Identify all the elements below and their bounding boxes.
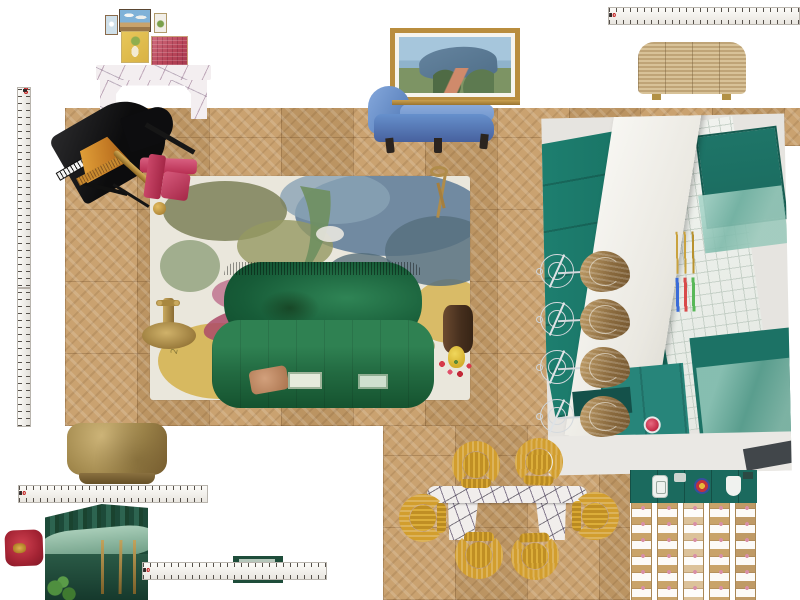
chair-front: [461, 479, 491, 488]
stool-bolt: [536, 316, 543, 323]
banquette-brass-leg: [133, 540, 136, 594]
rattan-sideboard[interactable]: [638, 42, 746, 100]
plan-room-column: [631, 503, 652, 600]
counter-stool-3[interactable]: [538, 345, 633, 391]
gallery-frame-sky[interactable]: [119, 9, 151, 32]
kitchen-gold-utensils: [672, 231, 699, 274]
brass-ottoman[interactable]: [67, 423, 167, 484]
kitchen-floor-plan[interactable]: [630, 470, 757, 503]
kitchen-knife-handles: [673, 277, 698, 311]
stool-seat: [580, 396, 630, 437]
gallery-frame-blue-floral[interactable]: [105, 15, 118, 35]
blue-chaise[interactable]: [368, 86, 502, 156]
side-table-top: [142, 322, 196, 349]
sideboard-body: [638, 42, 746, 94]
gallery-frame-red[interactable]: [151, 36, 188, 66]
plan-appliance: [726, 476, 741, 496]
brass-side-table[interactable]: [142, 298, 196, 350]
measuring-tape-top[interactable]: 123456789101234567892012345678: [608, 7, 800, 25]
measuring-tape-ottoman[interactable]: 123456789101234567892012345678: [18, 485, 208, 503]
plan-stove: [674, 473, 686, 482]
gallery-frame-pear[interactable]: [154, 13, 167, 33]
chair-cushion: [582, 503, 608, 529]
ruler-number: 8: [19, 492, 22, 497]
sofa-cushion-tag-2: [358, 374, 388, 389]
red-flowers: [436, 356, 476, 378]
lamp-base: [153, 202, 166, 215]
stool-bolt: [536, 413, 543, 420]
dining-chair-gold[interactable]: [399, 494, 447, 542]
dining-chair-gold[interactable]: [455, 531, 503, 579]
counter-stool-2[interactable]: [538, 297, 633, 343]
plan-room-column: [683, 503, 704, 600]
ottoman-base: [79, 473, 155, 484]
ottoman-body: [67, 423, 167, 475]
green-banquette-photo[interactable]: [45, 504, 148, 600]
ruler-number: 8: [609, 14, 612, 19]
kitchen-plastic-sheet: [698, 185, 789, 253]
chair-front: [437, 503, 446, 533]
banquette-brass-leg: [101, 540, 104, 594]
flower-vase[interactable]: [436, 342, 476, 378]
stool-seat: [580, 347, 630, 388]
chair-front: [523, 475, 553, 485]
chaise-leg: [385, 138, 395, 154]
chaise-leg: [479, 134, 489, 150]
measuring-tape-bottom[interactable]: 123456789101234567892012345678: [142, 562, 327, 580]
bedroom-floor-plan[interactable]: [630, 503, 757, 600]
plan-room-column: [657, 503, 678, 600]
sideboard-foot: [722, 94, 731, 100]
armchair-seat: [160, 171, 190, 201]
dining-chair-gold[interactable]: [514, 437, 564, 487]
stool-bolt: [536, 268, 543, 275]
plan-cabinet: [743, 472, 753, 479]
plan-room-column: [709, 503, 730, 600]
plan-sink: [652, 475, 668, 498]
green-velvet-sofa[interactable]: [212, 262, 434, 408]
painting-artwork: [399, 37, 511, 93]
sofa-seat: [212, 320, 434, 408]
chair-front: [572, 501, 581, 531]
dining-chair-gold[interactable]: [571, 492, 619, 540]
brass-floor-lamp[interactable]: [426, 168, 460, 220]
chair-front: [464, 532, 494, 541]
stool-seat: [580, 251, 630, 292]
chair-cushion: [410, 505, 436, 531]
red-velvet-cushion[interactable]: [4, 529, 43, 566]
ruler-number: 1: [22, 89, 27, 92]
marble-dining-table[interactable]: [427, 486, 587, 503]
chaise-leg: [434, 138, 442, 153]
console-top-slab: [96, 65, 211, 80]
chair-cushion: [466, 542, 492, 568]
banquette-plant: [45, 576, 81, 600]
dining-chair-gold[interactable]: [452, 441, 500, 489]
measuring-tape-left[interactable]: 8765432209876543211098765432120987654321…: [17, 87, 31, 427]
sofa-cushion-tag: [288, 372, 322, 389]
counter-stool-1[interactable]: [538, 249, 633, 295]
stool-seat: [580, 299, 630, 340]
counter-stool-4[interactable]: [538, 394, 633, 440]
plan-room-column: [735, 503, 756, 600]
sideboard-foot: [652, 94, 661, 100]
moodboard-canvas: 8765432209876543211098765432120987654321…: [0, 0, 800, 600]
painting-frame-bottom-bar: [392, 100, 520, 105]
dining-chair-gold[interactable]: [510, 531, 560, 581]
ruler-number: 8: [143, 569, 146, 574]
plan-round-rug: [694, 478, 710, 494]
chair-cushion: [463, 452, 489, 478]
chair-front: [519, 532, 549, 542]
accent-armchair-pink[interactable]: [130, 152, 200, 206]
gallery-frame-yellow[interactable]: [121, 31, 149, 63]
stool-bolt: [536, 364, 543, 371]
